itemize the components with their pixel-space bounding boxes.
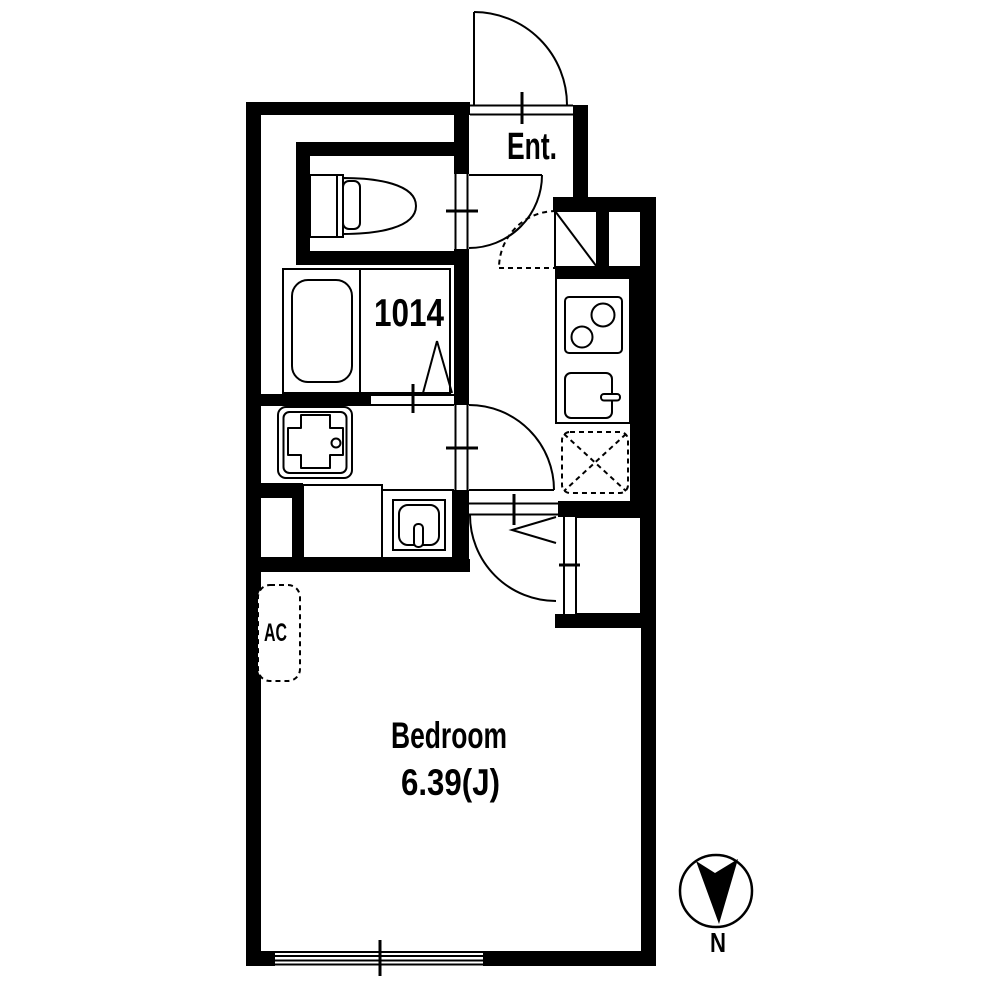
wall-bedroom-top — [246, 559, 470, 572]
wall-toilet-bottom — [296, 251, 454, 265]
washroom-door-swing-icon — [469, 405, 554, 490]
wall-shoebox-divider — [597, 211, 608, 267]
door-swings — [469, 12, 567, 601]
kitchen-sink-icon — [565, 373, 620, 418]
entrance-label: Ent. — [507, 126, 557, 168]
ac-unit-icon: AC — [258, 585, 300, 681]
wall-toilet-top — [296, 142, 469, 156]
entry-cabinet — [608, 211, 641, 267]
shoe-box-icon — [555, 211, 597, 267]
entrance-door-swing-icon — [474, 12, 567, 105]
closet — [576, 517, 641, 614]
kitchen-fixtures — [555, 211, 641, 493]
wall-under-shoebox — [555, 267, 641, 278]
bath-unit-size-label: 1014 — [374, 292, 444, 335]
toilet-icon — [310, 175, 416, 237]
pipe-niche — [261, 498, 292, 557]
stove-icon — [565, 297, 622, 353]
wall-bath-bottom — [261, 394, 371, 406]
fridge-space-icon — [562, 432, 628, 493]
bedroom-label: Bedroom — [391, 715, 507, 756]
ac-label: AC — [264, 619, 287, 647]
wall-closet-bottom — [555, 614, 656, 628]
wall-top — [246, 102, 470, 115]
toilet-door-swing-icon — [469, 175, 542, 248]
bathtub-icon — [292, 280, 352, 382]
wall-right — [641, 197, 656, 966]
bedroom-area-label: 6.39(J) — [401, 762, 500, 803]
wall-kitchen-bottom — [558, 501, 641, 517]
wall-entrance-right — [573, 105, 588, 211]
vanity-sink-icon — [382, 490, 453, 558]
compass-label: N — [710, 927, 726, 958]
bedroom-door-swing-icon — [470, 515, 556, 601]
floor-plan-canvas: AC Ent. 1014 Bedroom 6.39(J) N — [0, 0, 1000, 1000]
wall-toilet-left — [296, 142, 310, 265]
washer-pan-icon — [278, 407, 352, 478]
compass-north-icon: N — [680, 855, 752, 958]
wall-kitchen-top — [553, 197, 656, 211]
floor-plan: AC Ent. 1014 Bedroom 6.39(J) N — [0, 0, 1000, 1000]
washroom-counter — [303, 485, 382, 558]
wall-kitchen-furring — [630, 278, 641, 501]
washroom-fixtures — [278, 407, 453, 558]
shoebox-door-swing-icon — [499, 211, 556, 268]
